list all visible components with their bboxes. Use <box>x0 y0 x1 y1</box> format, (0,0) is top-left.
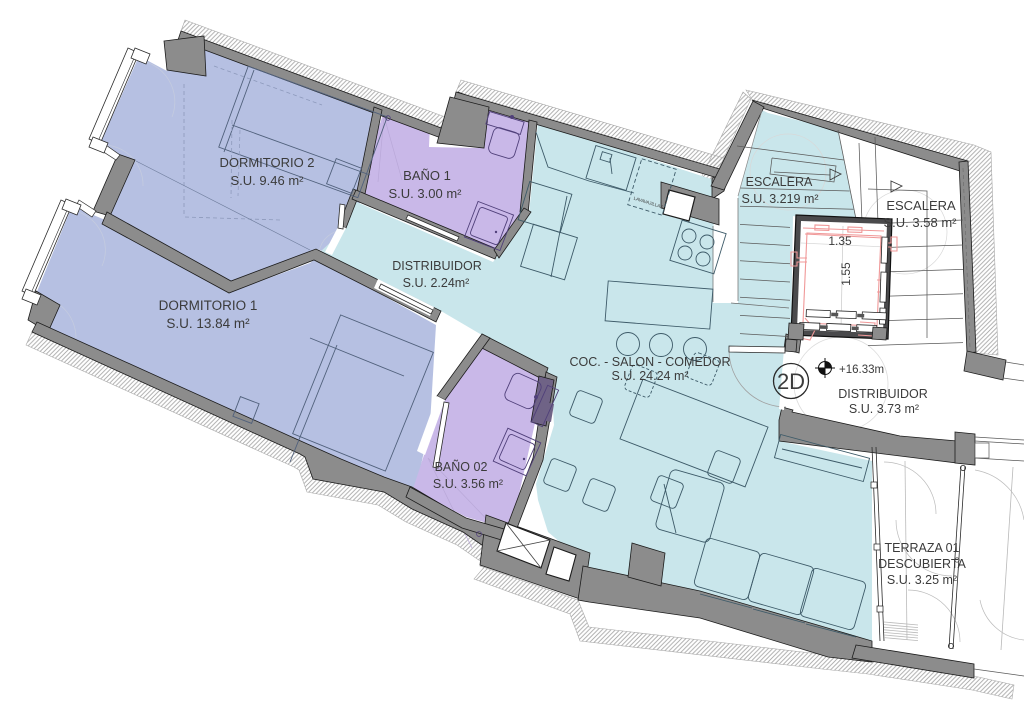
svg-text:+16.33m: +16.33m <box>839 364 884 376</box>
svg-text:S.U. 3.00 m²: S.U. 3.00 m² <box>389 186 463 201</box>
svg-text:1.55: 1.55 <box>839 262 853 286</box>
svg-text:2D: 2D <box>777 369 805 394</box>
svg-text:1.35: 1.35 <box>828 234 852 248</box>
svg-text:DORMITORIO 1: DORMITORIO 1 <box>159 298 258 313</box>
svg-text:S.U. 3.25 m²: S.U. 3.25 m² <box>887 573 957 587</box>
svg-text:DORMITORIO 2: DORMITORIO 2 <box>219 155 314 170</box>
svg-text:S.U. 9.46 m²: S.U. 9.46 m² <box>231 173 305 188</box>
svg-text:BAÑO 1: BAÑO 1 <box>403 168 451 183</box>
svg-text:S.U. 2.24m²: S.U. 2.24m² <box>403 276 470 290</box>
svg-text:TERRAZA 01: TERRAZA 01 <box>884 541 959 555</box>
svg-text:BAÑO 02: BAÑO 02 <box>435 460 488 474</box>
svg-text:S.U. 3.73 m²: S.U. 3.73 m² <box>849 402 919 416</box>
svg-text:DESCUBIERTA: DESCUBIERTA <box>878 557 966 571</box>
svg-text:S.U. 3.219 m²: S.U. 3.219 m² <box>741 192 818 206</box>
svg-text:DISTRIBUIDOR: DISTRIBUIDOR <box>392 259 482 273</box>
svg-text:ESCALERA: ESCALERA <box>746 175 813 189</box>
svg-text:S.U. 3.58 m²: S.U. 3.58 m² <box>884 215 958 230</box>
svg-text:S.U. 24.24 m²: S.U. 24.24 m² <box>611 369 688 383</box>
svg-text:DISTRIBUIDOR: DISTRIBUIDOR <box>838 387 928 401</box>
svg-text:S.U. 13.84 m²: S.U. 13.84 m² <box>166 316 250 331</box>
svg-text:COC. - SALON - COMEDOR: COC. - SALON - COMEDOR <box>569 355 730 369</box>
svg-text:S.U. 3.56 m²: S.U. 3.56 m² <box>433 477 503 491</box>
svg-text:ESCALERA: ESCALERA <box>886 198 956 213</box>
